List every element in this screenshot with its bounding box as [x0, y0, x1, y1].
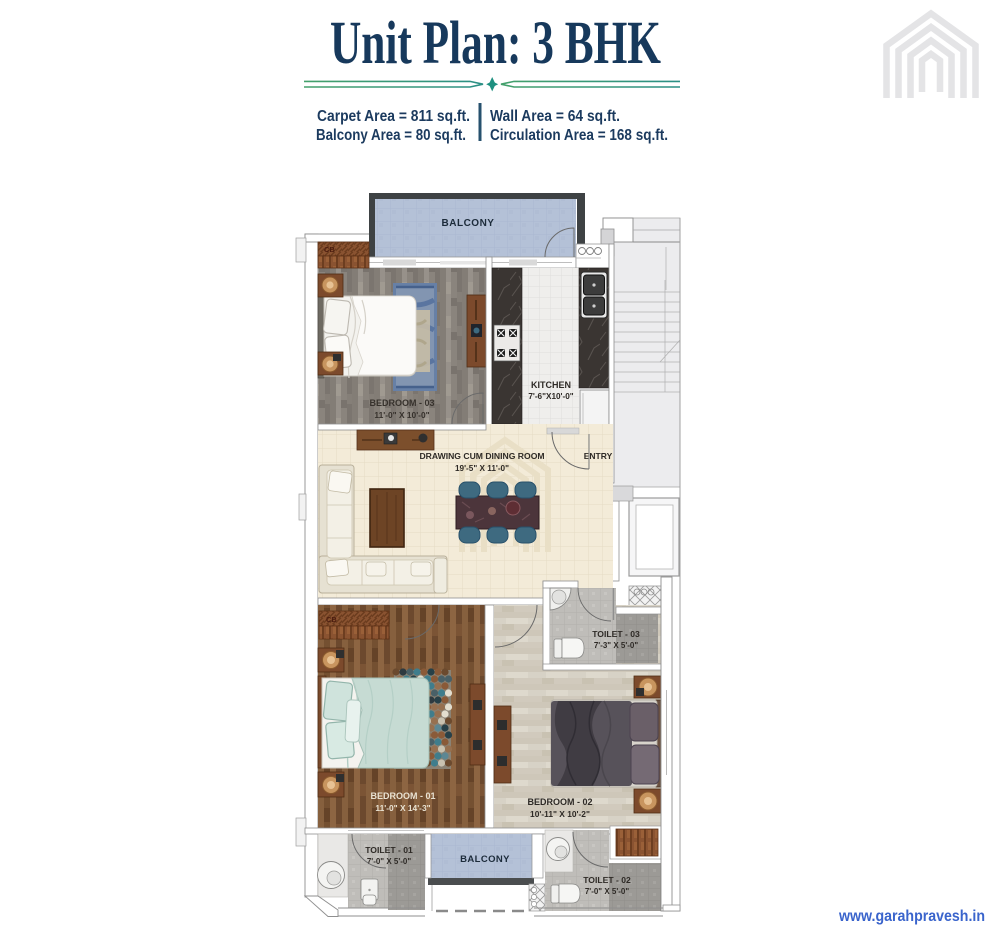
svg-text:KITCHEN: KITCHEN	[531, 380, 571, 390]
svg-text:Unit Plan: 3 BHK: Unit Plan: 3 BHK	[330, 10, 661, 77]
svg-text:TOILET - 03: TOILET - 03	[592, 629, 640, 639]
svg-text:BEDROOM - 02: BEDROOM - 02	[527, 797, 592, 807]
svg-text:11'-0" X 14'-3": 11'-0" X 14'-3"	[375, 803, 430, 813]
svg-text:DRAWING CUM DINING ROOM: DRAWING CUM DINING ROOM	[419, 451, 544, 461]
svg-text:Wall Area = 64 sq.ft.: Wall Area = 64 sq.ft.	[490, 108, 620, 125]
svg-text:CB: CB	[324, 245, 335, 254]
svg-text:TOILET - 01: TOILET - 01	[365, 845, 413, 855]
svg-text:19'-5" X 11'-0": 19'-5" X 11'-0"	[455, 464, 509, 473]
svg-text:www.garahpravesh.in: www.garahpravesh.in	[838, 908, 985, 925]
svg-text:7'-0" X 5'-0": 7'-0" X 5'-0"	[367, 857, 412, 866]
svg-text:7'-6"X10'-0": 7'-6"X10'-0"	[528, 392, 573, 401]
svg-text:BEDROOM - 01: BEDROOM - 01	[370, 791, 435, 801]
svg-text:TOILET - 02: TOILET - 02	[583, 875, 631, 885]
svg-text:CB: CB	[326, 615, 337, 624]
svg-text:BALCONY: BALCONY	[460, 854, 510, 865]
svg-text:10'-11" X 10'-2": 10'-11" X 10'-2"	[530, 809, 590, 819]
svg-text:BALCONY: BALCONY	[442, 218, 495, 229]
svg-text:ENTRY: ENTRY	[584, 451, 613, 461]
svg-text:7'-0" X 5'-0": 7'-0" X 5'-0"	[585, 887, 630, 896]
svg-text:Carpet Area = 811 sq.ft.: Carpet Area = 811 sq.ft.	[317, 108, 470, 125]
svg-text:Balcony Area = 80 sq.ft.: Balcony Area = 80 sq.ft.	[316, 127, 466, 144]
svg-text:11'-0" X 10'-0": 11'-0" X 10'-0"	[374, 410, 429, 420]
svg-text:Circulation Area = 168 sq.ft.: Circulation Area = 168 sq.ft.	[490, 127, 668, 144]
svg-text:7'-3" X 5'-0": 7'-3" X 5'-0"	[594, 641, 639, 650]
svg-text:BEDROOM - 03: BEDROOM - 03	[369, 398, 434, 408]
